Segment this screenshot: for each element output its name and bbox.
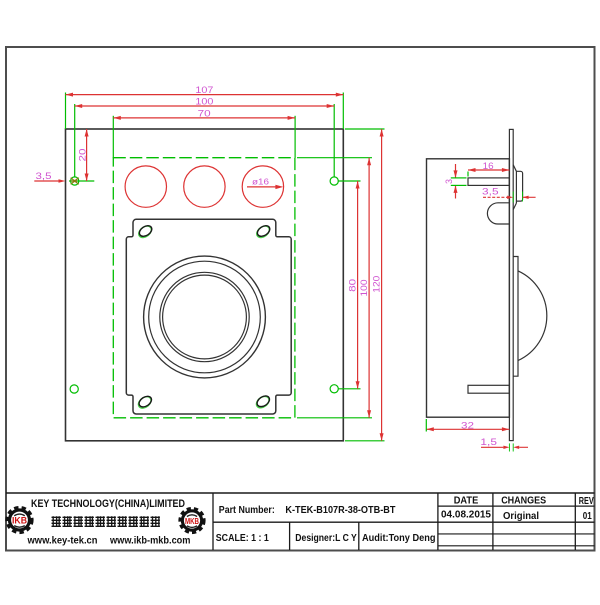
svg-text:70: 70 <box>198 109 211 119</box>
svg-text:3,5: 3,5 <box>36 171 52 181</box>
svg-text:K-TEK-B107R-38-OTB-BT: K-TEK-B107R-38-OTB-BT <box>285 505 395 516</box>
svg-text:01: 01 <box>583 511 592 522</box>
svg-text:SCALE: 1 : 1: SCALE: 1 : 1 <box>216 533 269 544</box>
svg-text:120: 120 <box>371 276 381 293</box>
svg-text:MKB: MKB <box>185 517 199 526</box>
svg-text:REV: REV <box>579 496 594 507</box>
svg-text:100: 100 <box>195 97 213 107</box>
svg-text:www.ikb-mkb.com: www.ikb-mkb.com <box>109 535 190 547</box>
svg-text:3: 3 <box>444 179 454 184</box>
svg-text:IKB: IKB <box>12 516 27 526</box>
svg-text:Part Number:: Part Number: <box>219 505 275 516</box>
svg-text:107: 107 <box>195 85 213 95</box>
svg-text:3,5: 3,5 <box>482 187 499 197</box>
svg-text:DATE: DATE <box>454 496 479 507</box>
svg-text:04.08.2015: 04.08.2015 <box>441 510 491 521</box>
svg-text:Audit:Tony Deng: Audit:Tony Deng <box>362 533 436 544</box>
svg-text:Designer:L C Y: Designer:L C Y <box>295 533 357 544</box>
svg-text:www.key-tek.cn: www.key-tek.cn <box>27 535 98 547</box>
svg-text:100: 100 <box>359 280 369 297</box>
svg-text:CHANGES: CHANGES <box>501 496 546 507</box>
svg-text:16: 16 <box>483 161 494 171</box>
svg-text:32: 32 <box>461 421 474 431</box>
svg-text:Original: Original <box>503 511 539 522</box>
svg-text:KEY TECHNOLOGY(CHINA)LIMITED: KEY TECHNOLOGY(CHINA)LIMITED <box>31 498 185 510</box>
svg-text:ø16: ø16 <box>252 177 269 187</box>
svg-text:1,5: 1,5 <box>480 437 497 447</box>
svg-text:20: 20 <box>77 149 87 162</box>
svg-text:80: 80 <box>347 279 357 292</box>
